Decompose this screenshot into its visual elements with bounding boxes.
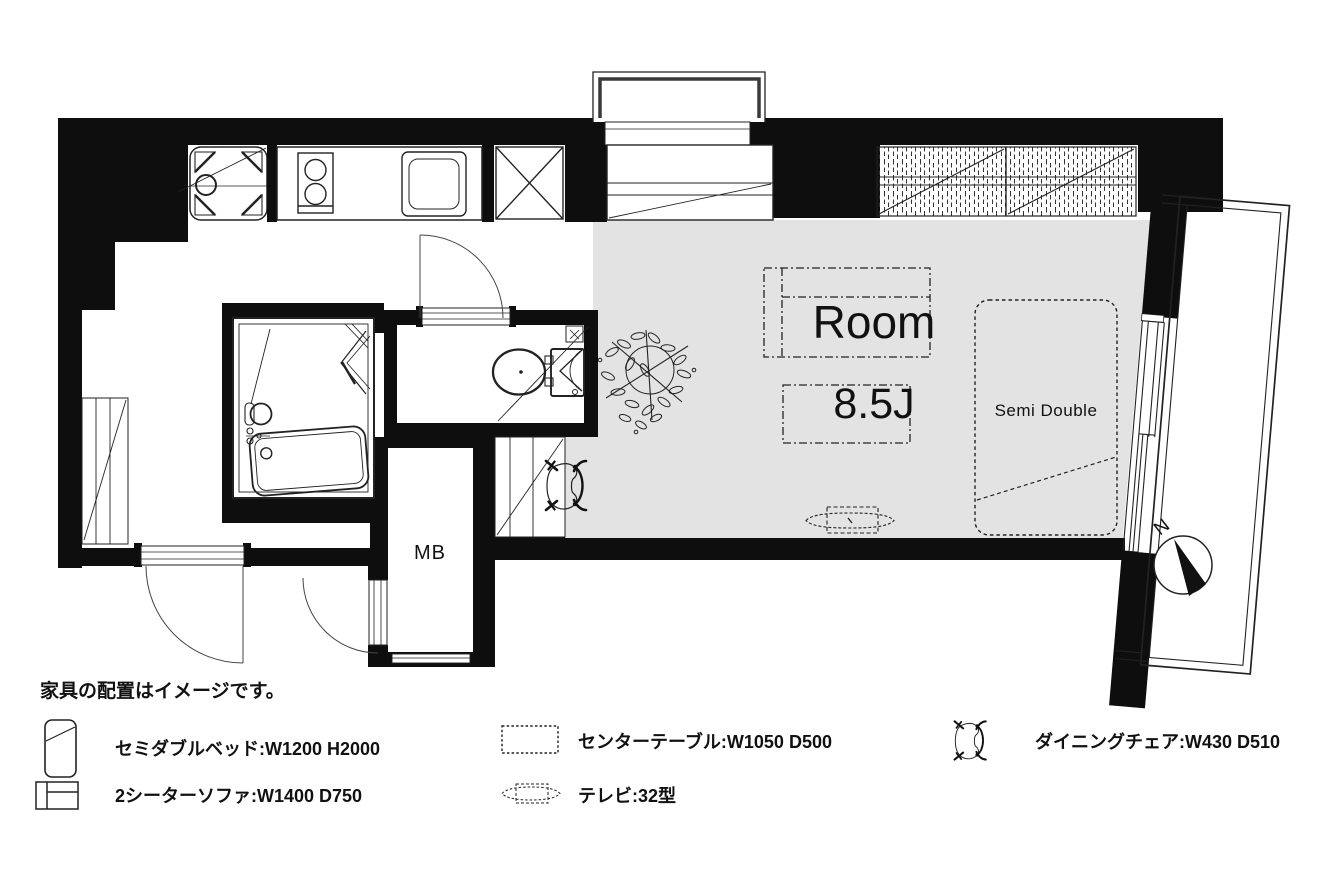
meter-box-door-icon xyxy=(303,578,387,653)
tilted-wall-lower xyxy=(1109,551,1158,708)
storage-counter-icon xyxy=(596,145,773,220)
compass-label: N xyxy=(1150,515,1174,540)
floorplan-svg: MB Semi Double xyxy=(0,0,1330,887)
bed-icon xyxy=(45,720,76,777)
floorplan-page: MB Semi Double xyxy=(0,0,1330,887)
entrance-door-icon xyxy=(134,543,251,663)
legend-sofa-label: 2シーターソファ:W1400 D750 xyxy=(115,786,362,806)
legend-bed-label: セミダブルベッド:W1200 H2000 xyxy=(115,738,380,759)
closet-icon xyxy=(877,147,1136,216)
hall-closet xyxy=(495,437,565,537)
meter-box-label: MB xyxy=(414,542,446,564)
legend-table-label: センターテーブル:W1050 D500 xyxy=(578,731,832,752)
kitchen xyxy=(178,145,565,222)
legend: 家具の配置はイメージです。 セミダブルベッド:W1200 H2000 2シーター… xyxy=(36,679,1280,809)
disclaimer-text: 家具の配置はイメージです。 xyxy=(40,679,285,702)
unit-bath xyxy=(233,318,374,498)
toilet-door-icon xyxy=(416,235,516,327)
compass-rose-icon: N xyxy=(1150,515,1212,596)
legend-tv-label: テレビ:32型 xyxy=(578,785,676,806)
bay-window-icon xyxy=(593,72,765,145)
sofa-icon xyxy=(36,782,78,809)
tv-icon-legend xyxy=(502,784,560,803)
legend-chair-label: ダイニングチェア:W430 D510 xyxy=(1035,731,1280,752)
toilet-room xyxy=(493,326,588,421)
table-icon xyxy=(502,726,558,753)
room-label: Room xyxy=(813,296,936,348)
meter-box: MB xyxy=(388,448,473,663)
room-size-label: 8.5J xyxy=(833,380,914,428)
chair-icon-legend xyxy=(955,721,986,759)
bed-label: Semi Double xyxy=(995,401,1098,420)
shoe-closet xyxy=(82,398,128,544)
